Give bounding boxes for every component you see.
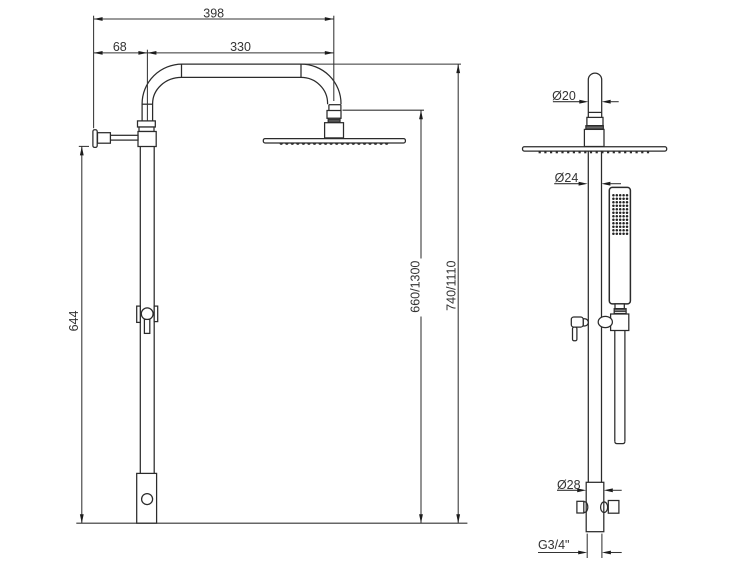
- svg-text:330: 330: [230, 40, 251, 54]
- svg-text:660/1300: 660/1300: [409, 261, 423, 313]
- svg-text:68: 68: [113, 40, 127, 54]
- svg-text:398: 398: [203, 6, 224, 20]
- svg-text:740/1110: 740/1110: [445, 261, 459, 311]
- svg-text:Ø24: Ø24: [555, 171, 579, 185]
- svg-text:G3/4": G3/4": [538, 538, 570, 552]
- svg-text:Ø20: Ø20: [552, 89, 576, 103]
- svg-text:644: 644: [67, 311, 81, 332]
- svg-text:Ø28: Ø28: [557, 478, 581, 492]
